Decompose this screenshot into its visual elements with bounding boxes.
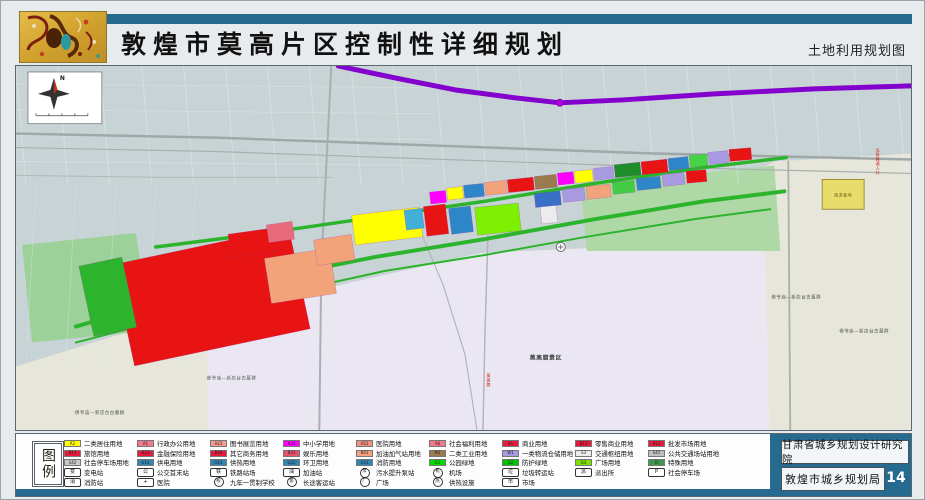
legend-column-4: A33中小学用地B31娱乐用地U22环卫用地油加油站客长途客运站 [283,439,356,487]
legend-label: 变电站 [84,468,103,477]
legend-item: U31消防用地 [356,458,429,468]
page-title: 敦煌市莫高片区控制性详细规划 [121,25,569,61]
legend-label: 铁路站场 [230,468,256,477]
land-use-parcel[interactable] [641,159,668,175]
legend-swatch: B11 [575,440,592,447]
legend-item: 市市场 [502,477,575,487]
legend-label: 公园绿地 [449,458,475,467]
legend-swatch: U22 [283,459,300,466]
land-use-parcel[interactable] [507,177,534,193]
legend-item: 客长途客运站 [283,477,356,487]
design-institute-box: 甘肃省城乡规划设计研究院 [781,440,909,464]
legend-item: B11零售商业用地 [575,439,648,449]
legend-item: B12批发市场用地 [648,439,721,449]
mural-art [20,12,106,62]
land-use-parcel[interactable] [463,183,484,198]
legend-item: 铁铁路站场 [210,468,283,478]
legend-label: 市场 [522,478,535,487]
legend-供热设施-icon: 热 [433,477,443,487]
legend-item: 广广场 [356,477,429,487]
legend-icon: P [648,469,665,477]
land-use-parcel[interactable] [475,203,522,235]
legend-label: 中小学用地 [303,439,335,448]
legend-label: 旅馆用地 [84,449,110,458]
legend-icon: 变 [64,469,81,477]
legend-swatch: W1 [502,450,519,457]
legend-派出所-icon: 派 [575,468,592,477]
land-use-parcel[interactable] [449,206,474,234]
legend-icon: 校 [210,478,227,486]
legend-label: 九年一贯制学校 [230,478,275,487]
legend-icon: 热 [429,478,446,486]
legend-swatch: S42 [64,459,81,466]
legend-item: R2二类居住用地 [64,439,137,449]
legend-item: 变变电站 [64,468,137,478]
legend-item: A51医院用地 [356,439,429,449]
land-use-parcel[interactable] [614,162,641,178]
legend-label: 供电用地 [157,458,183,467]
legend-item: U15供热用地 [210,458,283,468]
map-label: 旅游基地 [834,192,852,197]
map-label: 瓜敦高速入口 [876,148,881,175]
legend-label: 二类工业用地 [449,449,487,458]
legend-column-3: A21图书展览用地B29其它商务用地U15供热用地铁铁路站场校九年一贯制学校 [210,439,283,487]
legend-title-text: 图例 [38,448,58,480]
legend-item: B14旅馆用地 [64,449,137,459]
legend-item: +医院 [137,477,210,487]
legend-label: 批发市场用地 [668,439,706,448]
legend-swatch: G3 [575,459,592,466]
legend-item: 垃垃圾转运站 [502,468,575,478]
header: 敦煌市莫高片区控制性详细规划 土地利用规划图 [15,9,912,61]
legend-垃圾转运站-icon: 垃 [502,468,519,477]
land-use-parcel[interactable] [662,172,685,186]
legend-label: 医院 [157,478,170,487]
legend-item: 公公交首末站 [137,468,210,478]
legend-icon: 铁 [210,469,227,477]
legend-label: 金融保险用地 [157,449,195,458]
legend-icon: + [137,478,154,486]
legend-swatch: S41 [648,450,665,457]
land-use-parcel[interactable] [689,154,708,167]
legend-label: 社会停车场 [668,468,700,477]
legend-item: A1行政办公用地 [137,439,210,449]
legend-item: A33中小学用地 [283,439,356,449]
legend-label: 二类居住用地 [84,439,122,448]
legend-item: G2防护绿地 [502,458,575,468]
legend-swatch: A6 [429,440,446,447]
legend-column-2: A1行政办公用地B21金融保险用地U12供电用地公公交首末站+医院 [137,439,210,487]
legend-广场-icon: 广 [360,477,370,487]
legend-item: 油加油站 [283,468,356,478]
legend-label: 公交首末站 [157,468,189,477]
land-use-parcel[interactable] [557,172,574,186]
map-label: 莫高路 [486,373,491,387]
dunhuang-mural-image [19,11,107,63]
legend-swatch: A21 [210,440,227,447]
legend-label: 垃圾转运站 [522,468,554,477]
legend-label: 特殊用地 [668,458,694,467]
legend-item: U12供电用地 [137,458,210,468]
legend-item: M2二类工业用地 [429,449,502,459]
map-label: 佛爷庙—新店台古墓群 [207,374,257,381]
legend-column-9: B12批发市场用地S41公共交通场站用地D特殊用地P社会停车场 [648,439,721,487]
legend-column-8: B11零售商业用地S3交通枢纽用地G3广场用地派派出所 [575,439,648,487]
legend-swatch: B31 [283,450,300,457]
legend-医院-icon: + [137,478,154,487]
legend-label: 长途客运站 [303,478,335,487]
legend-label: 商业用地 [522,439,548,448]
legend-swatch: S3 [575,450,592,457]
legend-长途客运站-icon: 客 [287,477,297,487]
legend-swatch: M2 [429,450,446,457]
legend-变电站-icon: 变 [64,468,81,477]
legend-加油站-icon: 油 [283,468,300,477]
legend-icon: 派 [575,469,592,477]
legend-swatch: B12 [648,440,665,447]
sheet-number: 14 [883,467,909,489]
legend-label: 公共交通场站用地 [668,449,719,458]
legend-swatch: B1 [502,440,519,447]
legend-污水提升泵站-icon: 泵 [360,468,370,478]
legend-label: 社会停车场用地 [84,458,129,467]
legend-swatch: B29 [210,450,227,457]
legend-swatch: G1 [429,459,446,466]
legend-label: 供热设施 [449,478,475,487]
legend-item: 校九年一贯制学校 [210,477,283,487]
land-use-parcel[interactable] [534,191,561,208]
legend-九年一贯制学校-icon: 校 [214,477,224,487]
legend-label: 娱乐用地 [303,449,329,458]
legend-icon: 广 [356,478,373,486]
legend-label: 环卫用地 [303,458,329,467]
legend-item: S41公共交通场站用地 [648,449,721,459]
legend-公交首末站-icon: 公 [137,468,154,477]
legend-swatch: A1 [137,440,154,447]
land-use-map[interactable]: N莫高窟景区佛爷庙—新店台古墓群佛爷庙—新店台古墓群佛爷庙—新店台古墓群佛爷庙—… [16,66,911,430]
land-use-parcel[interactable] [446,187,463,201]
legend-column-7: B1商业用地W1一类物流仓储用地G2防护绿地垃垃圾转运站市市场 [502,439,575,487]
legend-label: 行政办公用地 [157,439,195,448]
legend-label: 零售商业用地 [595,439,633,448]
legend-label: 加油站 [303,468,322,477]
map-label: 莫高窟景区 [529,353,562,361]
legend-icon: 垃 [502,469,519,477]
legend-item: A21图书展览用地 [210,439,283,449]
legend-item: 泵污水提升泵站 [356,468,429,478]
land-use-parcel[interactable] [574,170,593,184]
legend-swatch: U12 [137,459,154,466]
land-use-parcel[interactable] [534,174,557,189]
legend-swatch: A33 [283,440,300,447]
legend-column-6: A6社会福利用地M2二类工业用地G1公园绿地机机场热供热设施 [429,439,502,487]
legend-铁路站场-icon: 铁 [210,468,227,477]
legend-swatch: R2 [64,440,81,447]
legend-label: 消防站 [84,478,103,487]
land-use-parcel[interactable] [484,180,507,195]
legend-label: 污水提升泵站 [376,468,414,477]
legend-item: W1一类物流仓储用地 [502,449,575,459]
legend-swatch: B14 [64,450,81,457]
legend-label: 加油加气站用地 [376,449,421,458]
legend-swatch: B21 [137,450,154,457]
legend-机场-icon: 机 [433,468,443,478]
legend-icon: 油 [283,469,300,477]
map-label: 佛爷庙—新店台古墓群 [839,328,889,335]
legend-item: 派派出所 [575,468,648,478]
land-use-parcel[interactable] [429,191,446,205]
land-use-parcel[interactable] [586,184,611,199]
land-use-parcel[interactable] [266,221,294,242]
legend-item: B29其它商务用地 [210,449,283,459]
legend-label: 派出所 [595,468,614,477]
land-use-parcel[interactable] [423,204,448,236]
legend-label: 其它商务用地 [230,449,268,458]
legend-item: B31娱乐用地 [283,449,356,459]
land-use-parcel[interactable] [612,180,635,194]
legend-columns: R2二类居住用地B14旅馆用地S42社会停车场用地变变电站消消防站A1行政办公用… [64,439,768,487]
legend-icon: 市 [502,478,519,486]
legend-item: P社会停车场 [648,468,721,478]
legend-item: D特殊用地 [648,458,721,468]
legend-label: 一类物流仓储用地 [522,449,573,458]
legend-icon: 消 [64,478,81,486]
legend-item: B21金融保险用地 [137,449,210,459]
legend-label: 广场用地 [595,458,621,467]
map-label: 佛爷庙—新店台古墓群 [75,409,125,416]
legend-label: 社会福利用地 [449,439,487,448]
legend-item: 消消防站 [64,477,137,487]
legend-swatch: G2 [502,459,519,466]
legend-label: 防护绿地 [522,458,548,467]
land-use-parcel[interactable] [668,156,689,170]
legend-item: 热供热设施 [429,477,502,487]
legend-item: 机机场 [429,468,502,478]
bottom-panel: 图例 R2二类居住用地B14旅馆用地S42社会停车场用地变变电站消消防站A1行政… [15,433,912,497]
map-area[interactable]: N莫高窟景区佛爷庙—新店台古墓群佛爷庙—新店台古墓群佛爷庙—新店台古墓群佛爷庙—… [15,65,912,431]
land-use-parcel[interactable] [636,176,661,190]
legend-label: 图书展览用地 [230,439,268,448]
planning-bureau-box: 敦煌市城乡规划局 [781,467,885,491]
legend-item: G1公园绿地 [429,458,502,468]
legend-item: G3广场用地 [575,458,648,468]
map-type-label: 土地利用规划图 [808,40,906,59]
legend-swatch: A51 [356,440,373,447]
legend-label: 消防用地 [376,458,402,467]
legend-label: 广场 [376,478,389,487]
legend-消防站-icon: 消 [64,478,81,487]
plan-sheet: 敦煌市莫高片区控制性详细规划 土地利用规划图 N莫高窟景区佛爷庙—新店台古墓群佛… [0,0,925,500]
legend-column-5: A51医院用地B41加油加气站用地U31消防用地泵污水提升泵站广广场 [356,439,429,487]
legend-swatch: B41 [356,450,373,457]
legend-item: S42社会停车场用地 [64,458,137,468]
map-label: 佛爷庙—新店台古墓群 [771,294,821,301]
legend-swatch: U15 [210,459,227,466]
legend-社会停车场-icon: P [648,468,665,477]
land-use-parcel[interactable] [729,148,752,162]
legend-item: S3交通枢纽用地 [575,449,648,459]
legend-label: 医院用地 [376,439,402,448]
legend-icon: 泵 [356,469,373,477]
land-use-parcel[interactable] [404,208,424,230]
legend-icon: 客 [283,478,300,486]
legend-swatch: U31 [356,459,373,466]
compass-north-label: N [60,75,65,82]
legend-市场-icon: 市 [502,478,519,487]
legend-item: U22环卫用地 [283,458,356,468]
legend-panel: 图例 R2二类居住用地B14旅馆用地S42社会停车场用地变变电站消消防站A1行政… [16,434,770,489]
legend-item: B1商业用地 [502,439,575,449]
legend-column-1: R2二类居住用地B14旅馆用地S42社会停车场用地变变电站消消防站 [64,439,137,487]
legend-title: 图例 [32,441,64,487]
legend-icon: 机 [429,469,446,477]
land-use-parcel[interactable] [562,187,585,202]
footer-panel: 甘肃省城乡规划设计研究院 敦煌市城乡规划局 14 [770,434,913,496]
legend-swatch: D [648,459,665,466]
land-use-parcel[interactable] [686,170,707,184]
legend-icon: 公 [137,469,154,477]
legend-label: 供热用地 [230,458,256,467]
header-accent-bar [107,14,912,24]
legend-item: A6社会福利用地 [429,439,502,449]
legend-label: 机场 [449,468,462,477]
highway-interchange-node [556,99,563,106]
land-use-parcel[interactable] [708,151,729,165]
land-use-parcel[interactable] [593,166,614,180]
legend-item: B41加油加气站用地 [356,449,429,459]
legend-label: 交通枢纽用地 [595,449,633,458]
